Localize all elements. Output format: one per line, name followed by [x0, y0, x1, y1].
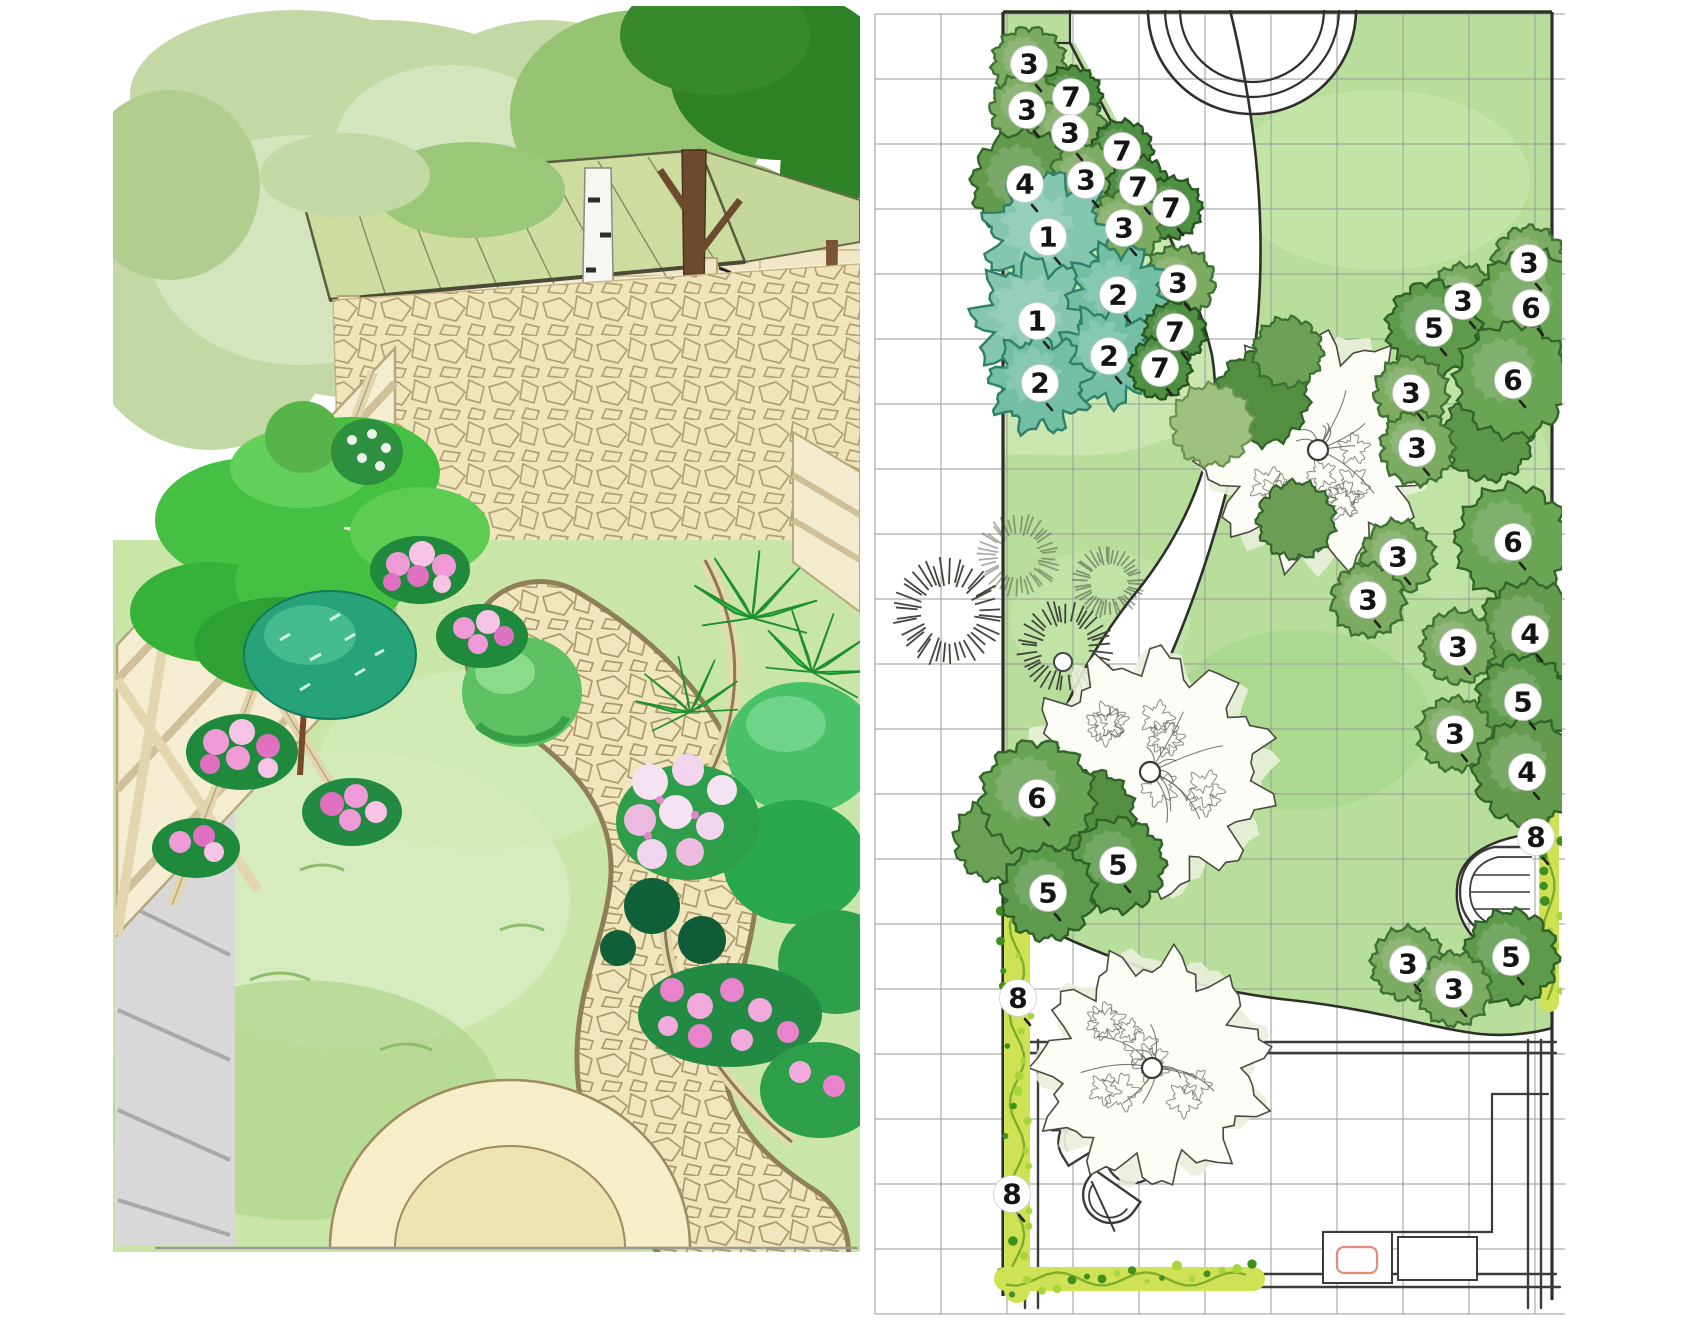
spa-basin: [1337, 1247, 1377, 1273]
plant-marker-number: 4: [1015, 168, 1034, 201]
plant-marker-number: 1: [1038, 221, 1057, 254]
plant-marker-number: 6: [1027, 782, 1046, 815]
fern: [0, 0, 52, 12]
plant-marker-number: 6: [1503, 364, 1522, 397]
plant-marker-number: 4: [1517, 756, 1536, 789]
plant-marker-number: 3: [1401, 377, 1420, 410]
plant-marker-number: 3: [1017, 94, 1036, 127]
plant-marker-number: 3: [1407, 432, 1426, 465]
plant-marker-number: 7: [1061, 81, 1080, 114]
plant-marker-number: 7: [1161, 192, 1180, 225]
garden-design-sheet: 3733743773311222773365633633435346558533…: [0, 0, 1698, 1340]
overhanging-leaves-2: [260, 133, 430, 217]
plant-marker-number: 7: [1128, 171, 1147, 204]
plant-marker-number: 3: [1448, 631, 1467, 664]
plant-marker-number: 8: [1002, 1178, 1021, 1211]
plant-marker-number: 3: [1114, 212, 1133, 245]
plant-marker-number: 5: [1038, 877, 1057, 910]
plant-marker-number: 3: [1445, 718, 1464, 751]
grass-center-dot: [1054, 653, 1072, 671]
plant-marker-number: 3: [1076, 164, 1095, 197]
plant-marker-number: 2: [1099, 340, 1118, 373]
garden-illustration: [0, 0, 910, 1252]
plant-marker-number: 3: [1358, 584, 1377, 617]
plant-marker-number: 7: [1112, 135, 1131, 168]
white-flower-bush: [331, 419, 403, 485]
plant-marker-number: 6: [1503, 526, 1522, 559]
plant-marker-number: 6: [1521, 292, 1540, 325]
plant-marker-number: 3: [1444, 973, 1463, 1006]
planting-plan: 3733743773311222773365633633435346558533…: [875, 0, 1590, 1322]
plant-marker-number: 3: [1398, 948, 1417, 981]
teal-speckled-bush: [244, 591, 416, 719]
ornamental-grass: [893, 557, 1002, 665]
plant-marker-number: 7: [1150, 352, 1169, 385]
plant-marker-number: 4: [1520, 618, 1539, 651]
plant-marker-number: 5: [1501, 941, 1520, 974]
plant-marker-number: 5: [1108, 849, 1127, 882]
plant-marker-number: 5: [1513, 686, 1532, 719]
drawing-canvas: 3733743773311222773365633633435346558533…: [0, 0, 1698, 1340]
plant-marker-number: 7: [1165, 316, 1184, 349]
plant-marker-number: 2: [1108, 279, 1127, 312]
plant-marker-number: 3: [1453, 285, 1472, 318]
plant-marker-number: 3: [1519, 247, 1538, 280]
plant-marker-number: 8: [1526, 821, 1545, 854]
plant-marker-number: 3: [1060, 117, 1079, 150]
plant-marker-number: 3: [1019, 48, 1038, 81]
plant-marker-number: 3: [1168, 267, 1187, 300]
plant-marker-number: 5: [1424, 312, 1443, 345]
plant-marker-number: 2: [1030, 367, 1049, 400]
plant-marker-number: 8: [1008, 982, 1027, 1015]
plant-marker-number: 1: [1027, 305, 1046, 338]
plant-marker-number: 3: [1388, 541, 1407, 574]
